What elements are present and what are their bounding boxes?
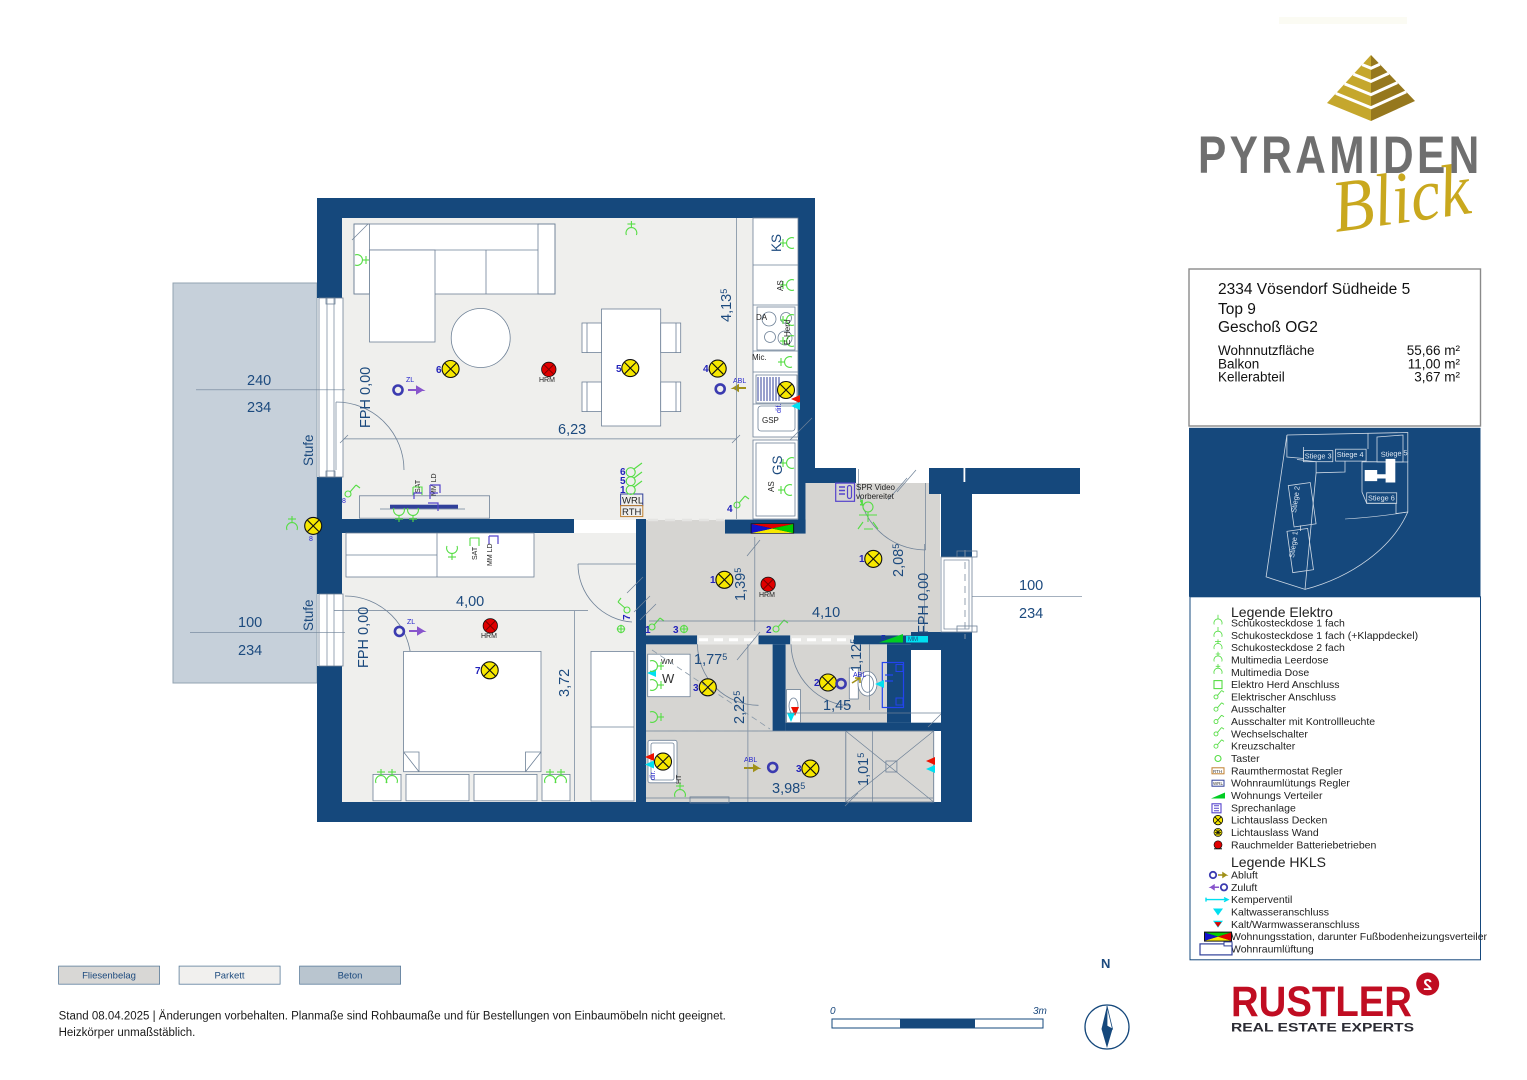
svg-text:ABL: ABL — [744, 757, 757, 764]
svg-text:6: 6 — [436, 365, 442, 376]
svg-text:4: 4 — [703, 364, 709, 375]
svg-text:Zuluft: Zuluft — [1231, 882, 1257, 894]
svg-text:4,00: 4,00 — [456, 594, 484, 610]
svg-text:3: 3 — [673, 625, 679, 636]
svg-text:Kaltwasseranschluss: Kaltwasseranschluss — [1231, 907, 1329, 919]
svg-text:RTH: RTH — [622, 507, 641, 518]
svg-text:8: 8 — [309, 536, 313, 543]
svg-text:3,67 m²: 3,67 m² — [1414, 370, 1460, 385]
svg-text:HRM: HRM — [539, 377, 555, 384]
svg-text:2: 2 — [766, 625, 772, 636]
svg-text:REAL ESTATE EXPERTS: REAL ESTATE EXPERTS — [1231, 1021, 1414, 1035]
svg-text:Stand 08.04.2025 | Änderungen: Stand 08.04.2025 | Änderungen vorbehalte… — [59, 1011, 726, 1023]
svg-text:AS: AS — [767, 481, 776, 492]
svg-text:100: 100 — [1019, 578, 1043, 594]
svg-text:8: 8 — [342, 498, 346, 505]
svg-text:Stiege 6: Stiege 6 — [1368, 494, 1395, 503]
svg-text:ZL: ZL — [407, 619, 415, 626]
svg-text:Lichtauslass Wand: Lichtauslass Wand — [1231, 827, 1319, 839]
svg-text:ABL: ABL — [853, 672, 866, 679]
svg-text:Stiege 4: Stiege 4 — [1337, 450, 1364, 459]
svg-text:Sprechanlage: Sprechanlage — [1231, 802, 1296, 814]
svg-text:KS: KS — [769, 234, 784, 252]
svg-text:DA: DA — [756, 313, 768, 322]
svg-text:Top 9: Top 9 — [1218, 301, 1256, 318]
svg-text:Multimedia Dose: Multimedia Dose — [1231, 667, 1309, 679]
svg-text:234: 234 — [1019, 606, 1043, 622]
svg-text:7: 7 — [622, 614, 633, 620]
svg-text:MM LD: MM LD — [487, 543, 494, 566]
svg-text:FPH 0,00: FPH 0,00 — [356, 607, 372, 668]
svg-text:1: 1 — [620, 485, 626, 496]
svg-text:2: 2 — [1423, 977, 1432, 994]
svg-text:Stiege 5: Stiege 5 — [1381, 448, 1408, 459]
svg-text:Kalt/Warmwasseranschluss: Kalt/Warmwasseranschluss — [1231, 919, 1360, 931]
svg-text:Rauchmelder Batteriebetrieben: Rauchmelder Batteriebetrieben — [1231, 839, 1376, 851]
svg-text:RTH: RTH — [1213, 769, 1222, 774]
svg-text:1: 1 — [860, 500, 864, 507]
svg-text:7: 7 — [475, 666, 481, 677]
svg-text:Wohnraumlütungs Regler: Wohnraumlütungs Regler — [1231, 778, 1350, 790]
svg-text:Wechselschalter: Wechselschalter — [1231, 728, 1308, 740]
svg-text:Taster: Taster — [1231, 753, 1260, 765]
svg-text:Geschoß OG2: Geschoß OG2 — [1218, 319, 1318, 336]
svg-text:Stufe: Stufe — [301, 599, 316, 631]
svg-text:Abluft: Abluft — [1231, 870, 1258, 882]
svg-text:240: 240 — [247, 373, 271, 389]
svg-text:N: N — [1101, 956, 1110, 971]
svg-text:dir.: dir. — [650, 771, 657, 780]
svg-text:1: 1 — [859, 554, 865, 565]
svg-text:Mic.: Mic. — [752, 353, 767, 362]
svg-text:Kellerabteil: Kellerabteil — [1218, 370, 1285, 385]
svg-text:Wohnungs Verteiler: Wohnungs Verteiler — [1231, 790, 1323, 802]
svg-text:Lichtauslass Decken: Lichtauslass Decken — [1231, 815, 1327, 827]
svg-text:2334 Vösendorf Südheide 5: 2334 Vösendorf Südheide 5 — [1218, 281, 1410, 298]
svg-text:2: 2 — [814, 678, 820, 689]
svg-text:WM: WM — [661, 659, 674, 666]
svg-text:Schukosteckdose 1 fach (+Klapp: Schukosteckdose 1 fach (+Klappdeckel) — [1231, 630, 1418, 642]
svg-text:Kreuzschalter: Kreuzschalter — [1231, 741, 1296, 753]
svg-text:MM: MM — [908, 637, 918, 643]
svg-text:E: E — [881, 635, 886, 642]
svg-text:AS: AS — [776, 280, 785, 291]
svg-text:Kemperventil: Kemperventil — [1231, 894, 1292, 906]
svg-text:3,72: 3,72 — [557, 669, 573, 697]
svg-text:5: 5 — [616, 364, 622, 375]
svg-text:100: 100 — [238, 615, 262, 631]
svg-text:3: 3 — [693, 683, 699, 694]
svg-text:GS: GS — [770, 455, 785, 475]
svg-text:ZL: ZL — [406, 377, 414, 384]
svg-text:HRM: HRM — [759, 592, 775, 599]
svg-text:Fliesenbelag: Fliesenbelag — [82, 970, 136, 981]
svg-text:FPH 0,00: FPH 0,00 — [358, 367, 374, 428]
svg-text:HRM: HRM — [481, 633, 497, 640]
svg-text:Elektrischer Anschluss: Elektrischer Anschluss — [1231, 691, 1336, 703]
svg-text:SAT: SAT — [415, 479, 422, 493]
svg-text:RUSTLER: RUSTLER — [1231, 978, 1412, 1026]
svg-text:Stufe: Stufe — [301, 434, 316, 466]
svg-text:GSP: GSP — [762, 416, 779, 425]
svg-text:Ausschalter mit Kontrollleucht: Ausschalter mit Kontrollleuchte — [1231, 716, 1375, 728]
svg-text:ABL: ABL — [733, 378, 746, 385]
svg-text:dif.: dif. — [776, 404, 783, 413]
svg-text:4,10: 4,10 — [812, 605, 840, 621]
svg-text:1: 1 — [645, 625, 651, 636]
svg-text:0: 0 — [830, 1006, 836, 1017]
svg-text:Schukosteckdose 1 fach: Schukosteckdose 1 fach — [1231, 618, 1345, 630]
svg-text:Multimedia Leerdose: Multimedia Leerdose — [1231, 655, 1329, 667]
svg-text:WRL: WRL — [622, 496, 643, 507]
svg-text:Parkett: Parkett — [214, 970, 244, 981]
svg-text:3m: 3m — [1033, 1006, 1047, 1017]
svg-text:E-Herd: E-Herd — [783, 320, 792, 345]
svg-text:Schukosteckdose 2 fach: Schukosteckdose 2 fach — [1231, 642, 1345, 654]
svg-text:Stiege 3: Stiege 3 — [1305, 452, 1332, 461]
svg-text:WRL: WRL — [1213, 781, 1223, 786]
svg-text:Wohnraumlüftung: Wohnraumlüftung — [1231, 943, 1314, 955]
svg-text:Heizkörper unmaßstäblich.: Heizkörper unmaßstäblich. — [59, 1027, 196, 1039]
svg-text:Ausschalter: Ausschalter — [1231, 704, 1286, 716]
svg-text:6,23: 6,23 — [558, 422, 586, 438]
svg-text:W: W — [662, 671, 675, 686]
svg-text:Wohnungsstation, darunter Fußb: Wohnungsstation, darunter Fußbodenheizun… — [1231, 931, 1488, 943]
svg-text:HT: HT — [676, 774, 683, 784]
svg-text:4: 4 — [727, 504, 733, 515]
svg-text:1: 1 — [710, 575, 716, 586]
svg-text:234: 234 — [238, 643, 262, 659]
svg-text:FPH 0,00: FPH 0,00 — [916, 573, 932, 634]
svg-text:SPR Video: SPR Video — [856, 483, 896, 492]
svg-text:Beton: Beton — [338, 970, 363, 981]
svg-text:1,45: 1,45 — [823, 698, 851, 714]
svg-text:3: 3 — [796, 764, 802, 775]
svg-text:234: 234 — [247, 400, 271, 416]
svg-text:Raumthermostat Regler: Raumthermostat Regler — [1231, 765, 1343, 777]
svg-text:SAT: SAT — [472, 546, 479, 560]
svg-text:Elektro Herd Anschluss: Elektro Herd Anschluss — [1231, 679, 1340, 691]
svg-text:Legende HKLS: Legende HKLS — [1231, 854, 1326, 870]
